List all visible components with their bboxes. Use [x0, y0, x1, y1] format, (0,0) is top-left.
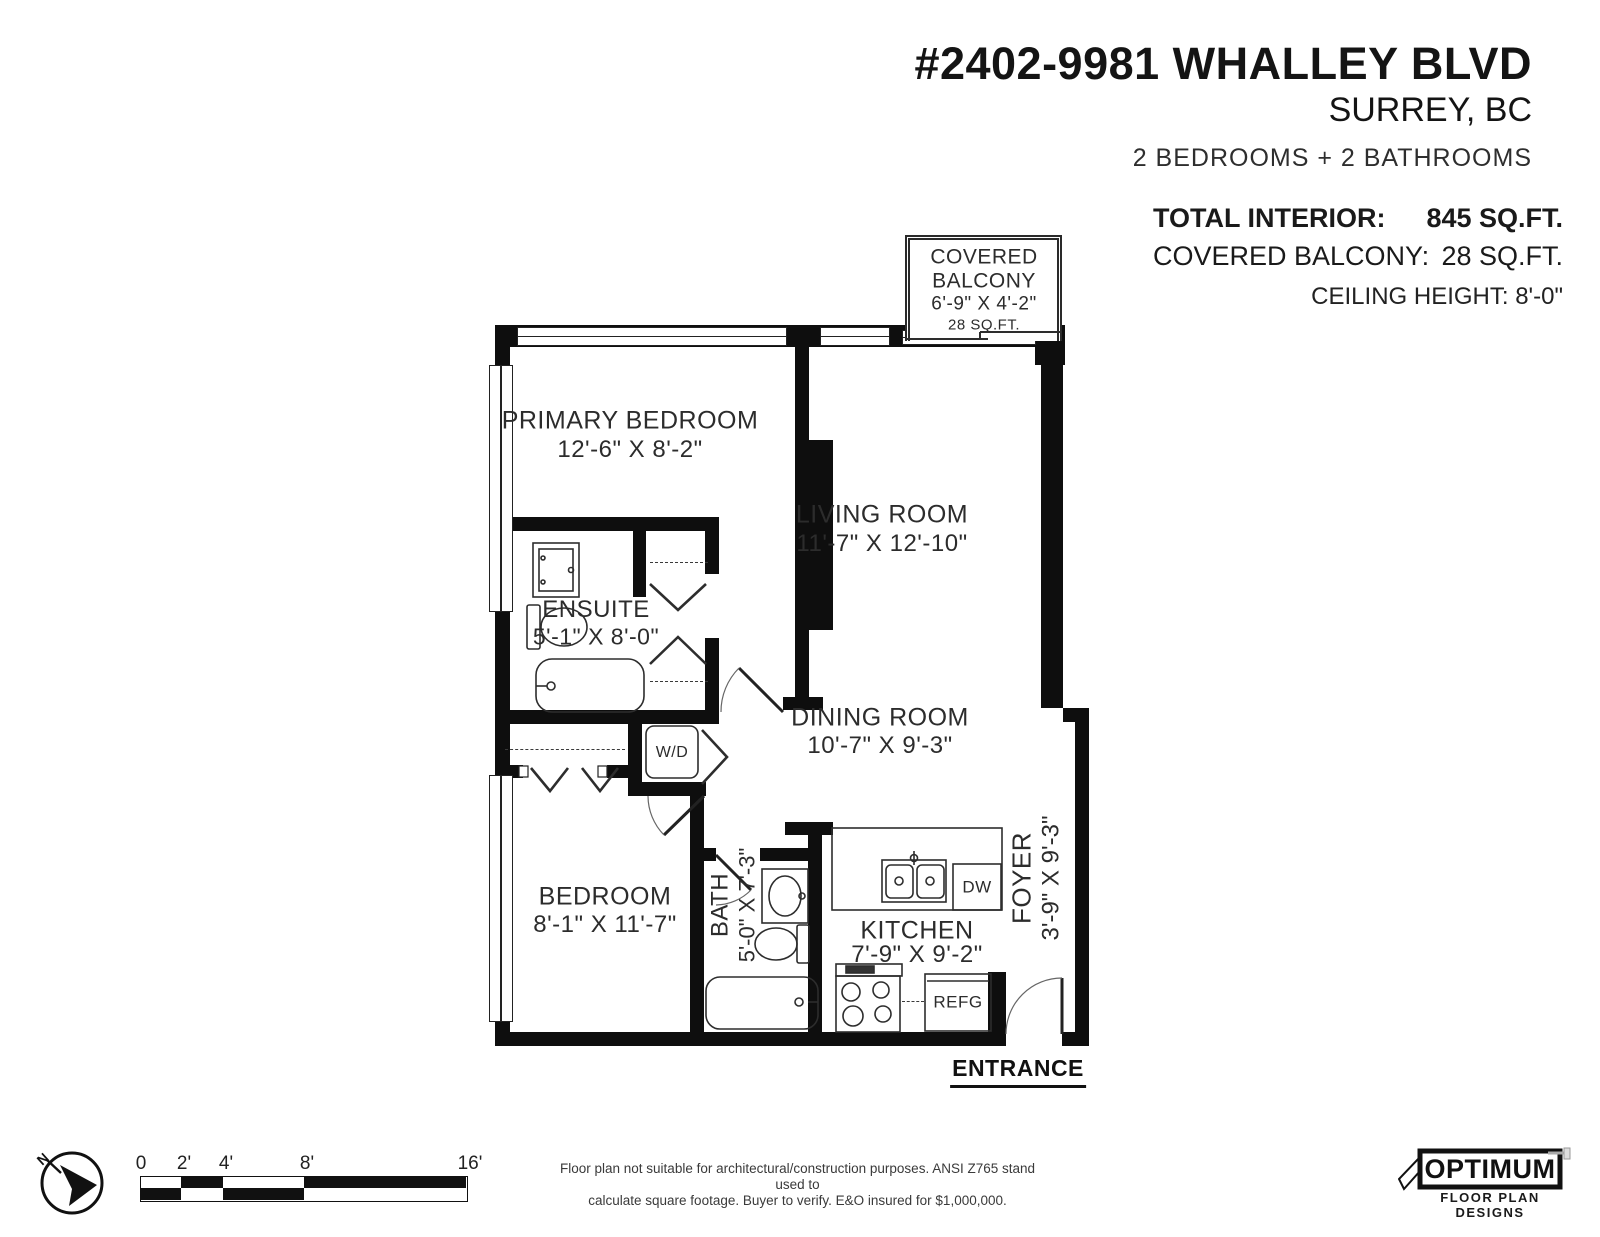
disclaimer-line: calculate square footage. Buyer to verif…: [560, 1193, 1035, 1209]
scale-tick-label: 0: [136, 1153, 147, 1175]
room-dims: 11'-7" X 12'-10": [796, 532, 967, 556]
balcony-area: 28 SQ.FT.: [948, 318, 1020, 333]
door-jamb: [519, 766, 528, 777]
scale-tick-label: 16': [458, 1153, 483, 1175]
disclaimer-line: Floor plan not suitable for architectura…: [560, 1161, 1035, 1193]
scale-tick-label: 2': [177, 1153, 191, 1175]
room-label: BEDROOM: [539, 885, 672, 910]
bifold-door-icon: [650, 584, 706, 610]
scale-segment: [181, 1177, 223, 1188]
bath-toilet-icon: [755, 925, 809, 963]
foyer-label-group: FOYER 3'-9" X 9'-3": [1007, 816, 1064, 941]
room-label: BATH: [707, 848, 735, 963]
north-compass-icon: N: [35, 1146, 109, 1220]
room-dims: 10'-7" X 9'-3": [807, 734, 952, 758]
scale-tick-label: 4': [219, 1153, 233, 1175]
logo-name: OPTIMUM: [1422, 1153, 1558, 1185]
door-swing: [648, 796, 704, 835]
scale-bar: [140, 1176, 468, 1202]
room-label: ENSUITE: [542, 598, 650, 622]
entrance-door-swing: [1006, 978, 1062, 1034]
entrance-label: ENTRANCE: [950, 1055, 1086, 1088]
balcony-dims: 6'-9" X 4'-2": [931, 295, 1036, 314]
door-jamb: [598, 766, 607, 777]
room-dims: 5'-1" X 8'-0": [533, 626, 659, 649]
ensuite-bathtub-icon: [536, 659, 644, 712]
bath-bathtub-icon: [706, 977, 818, 1029]
bifold-door-icon: [702, 730, 727, 784]
ensuite-sink-icon: [533, 543, 579, 597]
balcony-label: BALCONY: [932, 271, 1036, 292]
room-label: KITCHEN: [860, 919, 973, 944]
floor-plan-page: #2402-9981 WHALLEY BLVD SURREY, BC 2 BED…: [0, 0, 1600, 1237]
door-swing: [721, 668, 783, 712]
logo-tagline: FLOOR PLAN DESIGNS: [1418, 1190, 1562, 1220]
fridge-label: REFG: [933, 994, 982, 1011]
floorplan-linework: [0, 0, 1600, 1237]
room-label: FOYER: [1007, 816, 1037, 941]
room-label: LIVING ROOM: [796, 503, 968, 528]
room-label: PRIMARY BEDROOM: [502, 409, 759, 434]
kitchen-sink-icon: [882, 851, 946, 902]
stove-icon: [836, 964, 902, 1032]
room-dims: 8'-1" X 11'-7": [533, 913, 677, 937]
dishwasher-label: DW: [962, 879, 991, 896]
bifold-door-icon: [531, 768, 568, 791]
room-dims: 7'-9" X 9'-2": [851, 943, 982, 967]
scale-tick-label: 8': [300, 1153, 314, 1175]
bath-label-group: BATH 5'-0" X 7'-3": [707, 848, 760, 963]
bath-sink-icon: [762, 869, 808, 923]
scale-segment: [223, 1188, 304, 1200]
room-label: DINING ROOM: [791, 706, 969, 731]
disclaimer: Floor plan not suitable for architectura…: [560, 1161, 1035, 1209]
room-dims: 12'-6" X 8'-2": [557, 438, 702, 462]
company-logo: OPTIMUM FLOOR PLAN DESIGNS: [1398, 1147, 1573, 1209]
room-dims: 3'-9" X 9'-3": [1037, 816, 1065, 941]
balcony-label: COVERED: [930, 247, 1037, 268]
room-dims: 5'-0" X 7'-3": [734, 848, 759, 963]
scale-segment: [141, 1188, 181, 1200]
washer-dryer-label: W/D: [656, 745, 689, 761]
scale-segment: [304, 1177, 466, 1188]
